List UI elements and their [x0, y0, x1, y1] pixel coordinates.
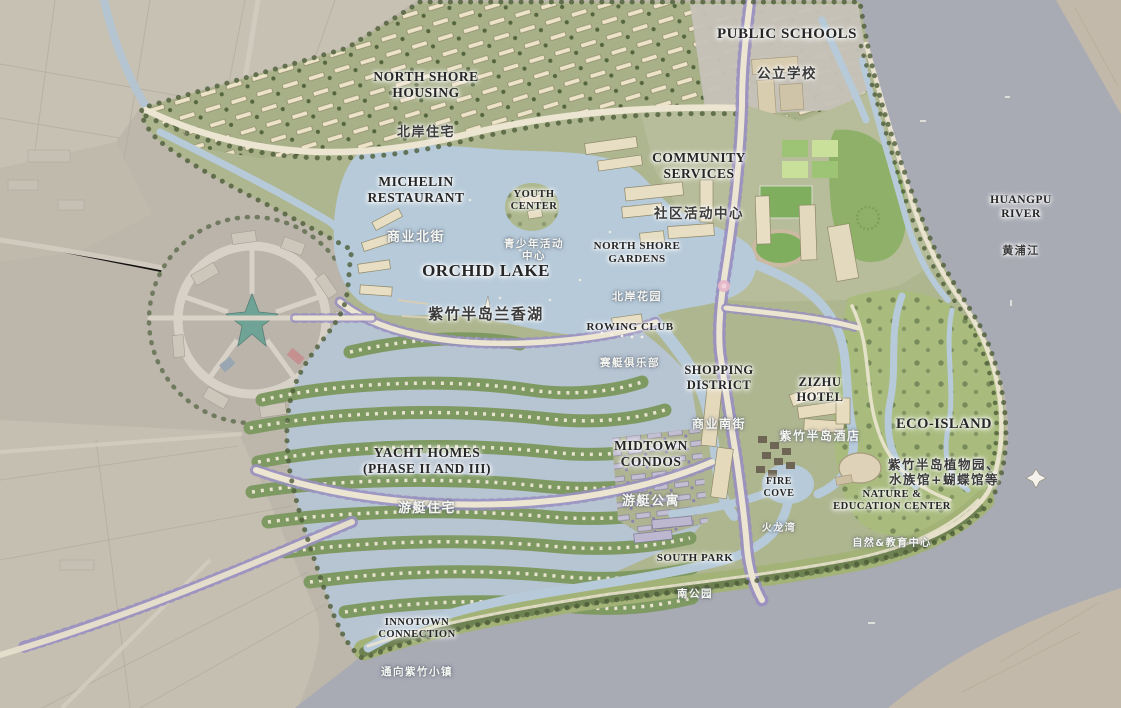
- label-north-shore-housing: NORTH SHORE HOUSING 北岸住宅: [373, 49, 478, 160]
- master-plan-map: PUBLIC SCHOOLS 公立学校 NORTH SHORE HOUSING …: [0, 0, 1121, 708]
- label-south-park: SOUTH PARK 南公园: [657, 532, 734, 621]
- map-labels: PUBLIC SCHOOLS 公立学校 NORTH SHORE HOUSING …: [0, 0, 1121, 708]
- label-orchid-lake: ORCHID LAKE 紫竹半岛兰香湖: [422, 241, 550, 343]
- label-public-schools: PUBLIC SCHOOLS 公立学校: [717, 5, 857, 102]
- label-midtown-condos: MIDTOWN CONDOS 游艇公寓: [614, 418, 688, 529]
- label-yacht-homes: YACHT HOMES (PHASE II AND III) 游艇住宅: [363, 425, 491, 536]
- label-huangpu-river: HUANGPU RIVER 黄浦江: [971, 173, 1071, 277]
- label-shopping-district: SHOPPING DISTRICT 商业南街: [684, 343, 753, 451]
- label-rowing-club: ROWING CLUB 赛艇俱乐部: [586, 301, 673, 390]
- label-nature-education-center: NATURE & EDUCATION CENTER 自然&教育中心: [833, 469, 951, 569]
- label-fire-cove: FIRE COVE 火龙湾: [762, 456, 797, 555]
- label-zizhu-hotel: ZIZHU HOTEL 紫竹半岛酒店: [779, 355, 860, 463]
- label-innotown-connection: INNOTOWN CONNECTION 通向紫竹小镇: [378, 597, 455, 698]
